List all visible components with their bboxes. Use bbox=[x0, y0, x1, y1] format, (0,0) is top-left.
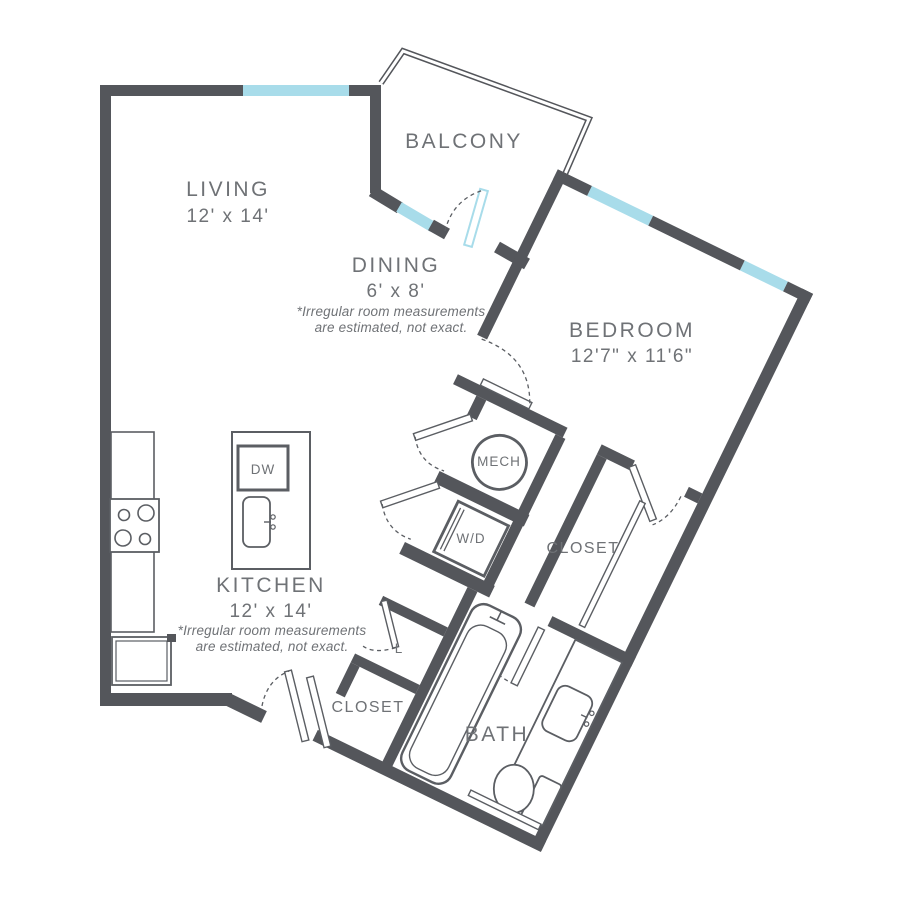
wall-linen-bottom bbox=[351, 653, 420, 694]
bedroom-dims: 12'7" x 11'6" bbox=[571, 346, 693, 367]
floor-plan: LIVING 12' x 14' DINING 6' x 8' *Irregul… bbox=[0, 0, 900, 900]
fridge bbox=[112, 637, 171, 685]
dining-note-1: *Irregular room measurements bbox=[297, 304, 486, 319]
window-bedroom-2 bbox=[740, 261, 788, 292]
window-living-top bbox=[243, 85, 349, 96]
dishwasher-label: DW bbox=[251, 462, 276, 477]
balcony-railing bbox=[381, 51, 589, 181]
wall-dining-stub-1 bbox=[372, 191, 400, 208]
window-dining bbox=[399, 207, 433, 227]
wall-bedroom-right bbox=[531, 289, 814, 852]
mech-label: MECH bbox=[477, 454, 521, 469]
bath-label: BATH bbox=[465, 723, 529, 746]
balcony-label: BALCONY bbox=[405, 130, 523, 153]
entry-closet-label: CLOSET bbox=[331, 699, 404, 716]
bedroom-closet-label: CLOSET bbox=[546, 540, 619, 557]
laundry-door-swing bbox=[374, 504, 419, 539]
wall-living-right bbox=[370, 92, 381, 193]
mech-door-swing bbox=[407, 437, 452, 472]
living-dims: 12' x 14' bbox=[186, 206, 269, 227]
wall-kitchen-bottom bbox=[100, 693, 232, 706]
kitchen-note-1: *Irregular room measurements bbox=[178, 623, 367, 638]
wall-bedroom-top-2 bbox=[648, 216, 744, 271]
washer-dryer-label: W/D bbox=[456, 531, 485, 546]
closet-rod bbox=[579, 501, 645, 628]
fridge-handle bbox=[167, 634, 176, 642]
wall-entry-closet-left bbox=[336, 662, 360, 697]
laundry-door bbox=[381, 482, 440, 508]
wall-top-left bbox=[100, 85, 243, 96]
mech-door bbox=[413, 414, 472, 440]
window-bedroom-1 bbox=[587, 186, 653, 226]
bedroom-label: BEDROOM bbox=[569, 319, 695, 342]
linen-closet-label: L bbox=[395, 641, 404, 656]
entry bbox=[262, 670, 331, 748]
kitchen-note-2: are estimated, not exact. bbox=[196, 639, 349, 654]
entry-door bbox=[285, 670, 309, 742]
balcony-door-group bbox=[445, 189, 488, 247]
wall-entry-diagonal bbox=[227, 699, 264, 717]
closet-door-swing bbox=[653, 491, 681, 531]
dining-label: DINING bbox=[352, 254, 441, 277]
kitchen-label: KITCHEN bbox=[216, 574, 326, 597]
living-label: LIVING bbox=[186, 178, 270, 201]
wall-bedroom-bottom bbox=[453, 374, 567, 437]
wall-left bbox=[100, 85, 111, 706]
kitchen-dims: 12' x 14' bbox=[229, 601, 312, 622]
wall-dining-stub-2 bbox=[431, 225, 447, 234]
wall-bedroom-left bbox=[477, 169, 568, 339]
entry-door-swing bbox=[262, 671, 289, 706]
dining-dims: 6' x 8' bbox=[367, 281, 426, 302]
dining-note-2: are estimated, not exact. bbox=[315, 320, 468, 335]
